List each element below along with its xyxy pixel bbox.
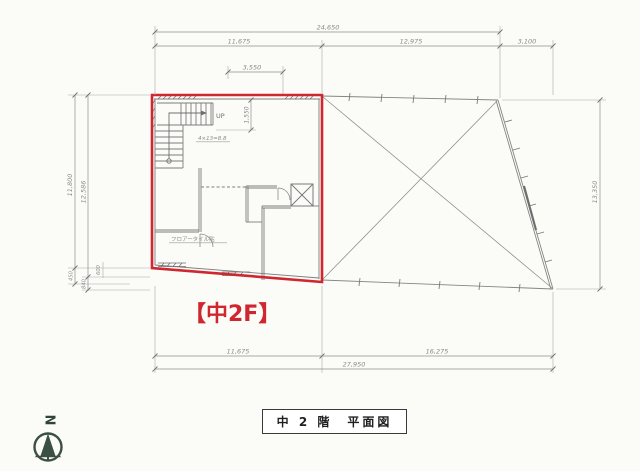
dim-top-total: 24,650 xyxy=(317,24,340,32)
floor-note: フロアータイル貼 xyxy=(171,235,215,243)
up-label: UP xyxy=(216,112,225,120)
dim-right-side: 13,350 xyxy=(591,181,599,204)
cross-bracing-icon xyxy=(323,97,552,288)
drawing-title: 中 2 階 平面図 xyxy=(277,413,393,430)
wall-hatching xyxy=(153,95,315,276)
dim-bottom-seg1: 11,675 xyxy=(227,348,250,356)
dim-inner-width: 3,550 xyxy=(243,64,262,72)
dim-left-small-1: 450 xyxy=(69,270,75,281)
dim-bottom-total: 27,950 xyxy=(343,361,366,369)
dim-left-outer: 11,800 xyxy=(66,174,74,197)
north-label: N xyxy=(42,415,57,426)
dim-top-seg2: 12,975 xyxy=(400,38,423,46)
dim-left-small-3: 600 xyxy=(96,264,102,275)
dim-left-inner: 12,586 xyxy=(80,181,88,204)
floor-highlight-label: 【中2F】 xyxy=(184,296,280,328)
plan-walls xyxy=(154,99,320,280)
elevator-shaft-icon xyxy=(291,184,313,206)
drawing-title-box: 中 2 階 平面図 xyxy=(262,409,407,434)
floorplan-page: UP 4×13=8.8 フロアータイル貼 24,650 11,675 12,97… xyxy=(0,0,640,471)
dim-top-seg1: 11,675 xyxy=(228,38,251,46)
dim-bottom-seg2: 16,275 xyxy=(426,348,449,356)
highlight-box xyxy=(152,95,322,282)
stair-note: 4×13=8.8 xyxy=(198,136,227,142)
north-compass-icon: N xyxy=(35,415,62,462)
dim-top-seg3: 3,100 xyxy=(518,38,537,46)
dim-stair-depth: 1,550 xyxy=(244,106,251,123)
dimension-top: 24,650 11,675 12,975 3,100 3,550 xyxy=(153,24,556,99)
floorplan-drawing: UP 4×13=8.8 フロアータイル貼 24,650 11,675 12,97… xyxy=(0,0,640,471)
dimension-right: 13,350 xyxy=(502,98,606,292)
dim-left-small-2: 840 xyxy=(82,278,88,289)
dimension-left: 11,800 12,586 450 840 600 xyxy=(66,93,150,293)
